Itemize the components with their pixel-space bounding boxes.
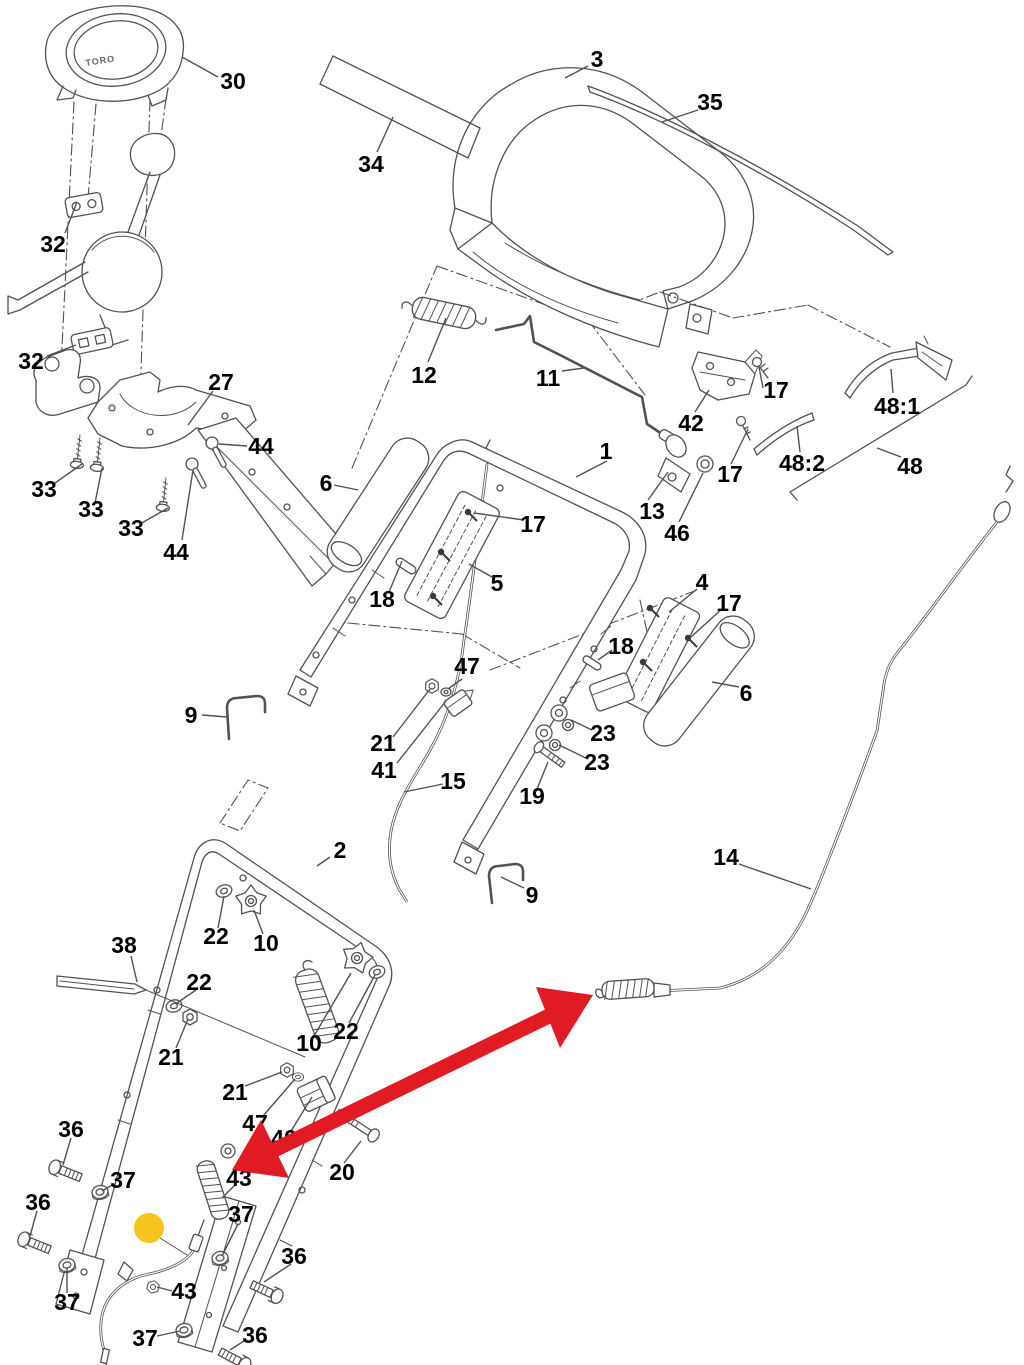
part-30-control-housing: TORO [46,6,184,106]
part-18-pin-right [582,655,603,672]
leader-line [797,426,800,452]
part-label: 34 [358,151,384,177]
highlight-dot [134,1213,164,1243]
part-label: 38 [111,932,137,958]
part-label: 41 [371,757,397,783]
diagram-line-art: TORO [8,6,1013,1365]
part-4-clamp-block [588,672,635,712]
part-label: 36 [281,1243,307,1269]
part-5-pad [403,489,502,620]
part-label: 22 [333,1018,359,1044]
part-label: 37 [132,1325,158,1351]
part-label: 6 [320,470,333,496]
part-label: 43 [171,1278,197,1304]
part-label: 32 [18,348,44,374]
part-label: 23 [590,720,616,746]
part-label: 19 [519,783,545,809]
leader-line [157,1287,172,1291]
part-label: 36 [58,1116,84,1142]
part-label: 3 [591,46,604,72]
leader-line [63,1138,71,1165]
part-label: 11 [536,365,561,391]
part-34-decal [320,56,480,158]
leader-line [571,720,592,730]
leader-line [695,390,709,412]
part-label: 33 [31,476,57,502]
part-label: 33 [118,515,144,541]
part-label: 1 [600,438,613,464]
part-label: 14 [713,844,739,870]
part-label: 22 [186,969,212,995]
leader-line [334,485,358,490]
part-label: 47 [454,653,480,679]
leader-line [140,508,168,524]
part-label: 37 [110,1167,136,1193]
part-48-2-tube [754,413,814,455]
part-label: 36 [242,1322,268,1348]
part-label: 4 [696,569,709,595]
part-label: 35 [697,89,723,115]
part-label: 13 [639,498,665,524]
exploded-diagram: TORO [0,0,1024,1365]
part-label: 22 [203,923,229,949]
part-label: 21 [222,1079,248,1105]
part-label: 32 [40,231,66,257]
part-label: 5 [491,570,504,596]
leader-line [739,864,811,889]
part-12-spring [400,293,488,332]
leader-line [182,470,193,540]
part-label: 27 [208,369,234,395]
part-48-1-tube [845,336,952,398]
leader-line [245,1072,282,1086]
part-label: 18 [369,586,395,612]
part-label: 44 [248,433,274,459]
part-label: 17 [717,461,743,487]
part-35-rod [588,86,893,255]
part-label: 10 [253,930,279,956]
part-label: 48 [897,453,923,479]
leader-line [891,369,893,393]
leader-line [202,715,227,717]
part-label: 44 [163,539,189,565]
leader-line [428,318,446,362]
parts-diagram-page: TORO [0,0,1024,1365]
leader-line [393,689,430,737]
throttle-lever-assembly [8,133,175,345]
part-label: 46 [664,520,690,546]
leader-line [377,117,393,152]
part-label: 33 [78,496,104,522]
part-label: 48:1 [874,393,920,419]
part-label: 9 [526,882,539,908]
part-9-hook-right [489,864,523,903]
part-label: 15 [440,768,466,794]
part-label: 17 [520,511,546,537]
part-42-bracket [692,350,762,400]
part-10-knob-left [236,885,266,914]
part-label: 42 [678,410,704,436]
part-label: 2 [334,837,347,863]
part-label: 20 [329,1159,355,1185]
part-label: 9 [185,702,198,728]
leader-line [55,464,82,483]
part-label: 37 [228,1201,254,1227]
leader-line [131,956,137,982]
leader-line [501,877,524,888]
part-label: 17 [763,377,789,403]
part-label: 21 [370,730,396,756]
part-label: 12 [411,362,437,388]
hidden-label-leader [160,1238,187,1255]
leader-line [562,368,584,371]
leader-line [182,57,218,77]
part-label: 37 [54,1289,80,1315]
part-label: 17 [716,590,742,616]
leader-line [731,429,748,464]
leader-line [263,1079,295,1116]
part-label: 21 [158,1044,184,1070]
part-label: 30 [220,68,246,94]
part-label: 6 [740,680,753,706]
part-label: 48:2 [779,450,825,476]
part-label: 18 [608,633,634,659]
part-18-pin-left [395,557,418,576]
part-label: 36 [25,1189,51,1215]
part-47-41-cable-guide [426,679,480,717]
part-label: 23 [584,749,610,775]
part-46-bushing [697,456,713,472]
leader-line [317,857,330,866]
part-9-hook-left [227,696,265,739]
part-label: 10 [296,1030,322,1056]
